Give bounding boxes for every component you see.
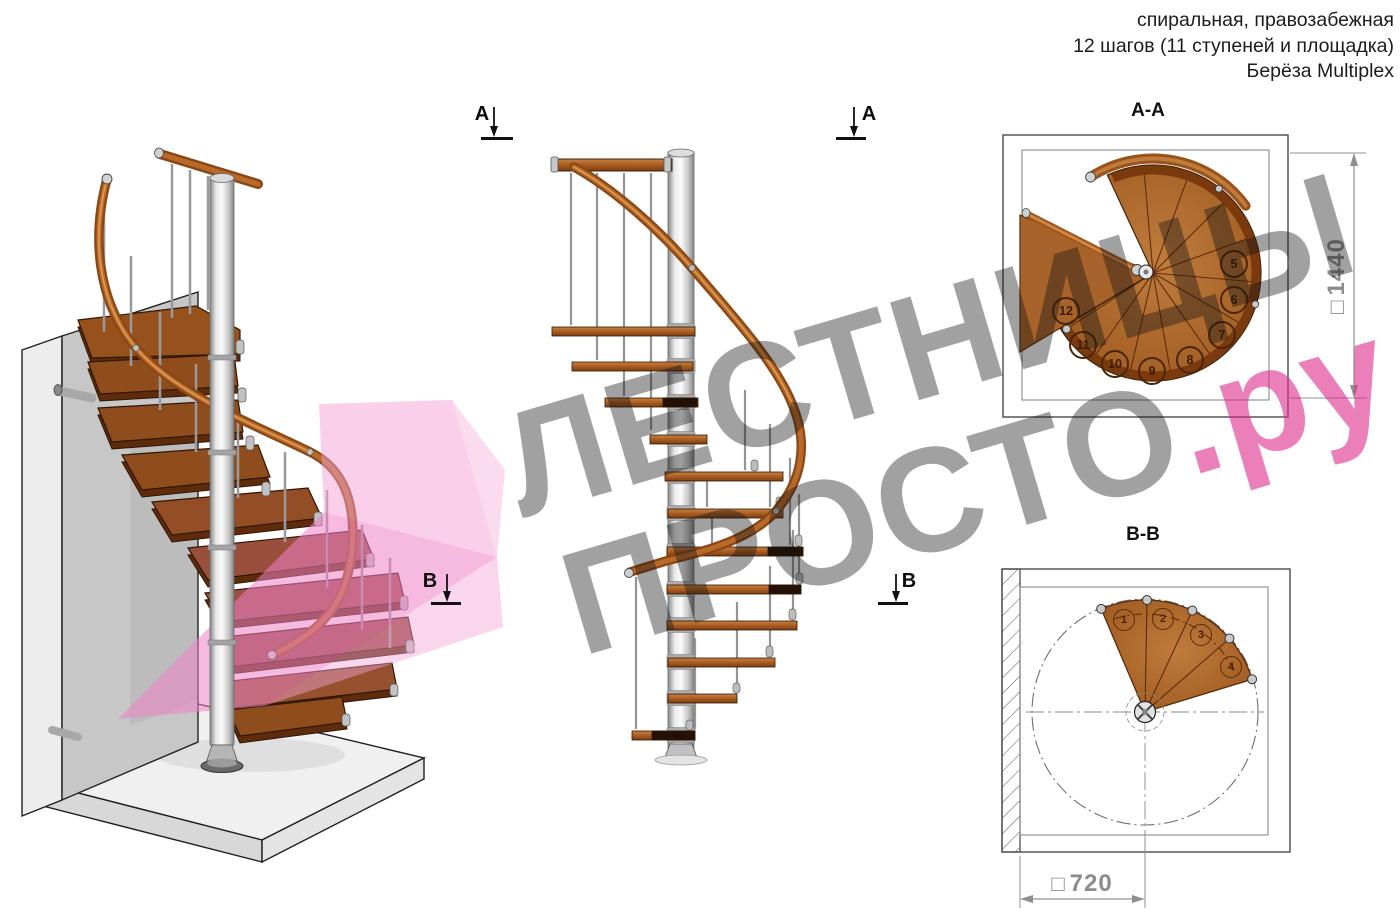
step-number-3: 3 xyxy=(1190,624,1212,646)
staircase-drawing-page: спиральная, правозабежная 12 шагов (11 с… xyxy=(0,0,1400,923)
marker-letter-b-left: В xyxy=(418,570,442,593)
left-3d-view xyxy=(22,148,505,862)
step-number-1: 1 xyxy=(1113,609,1135,631)
drawing-header: спиральная, правозабежная 12 шагов (11 с… xyxy=(1073,8,1394,85)
dimension-label-bb: □720 xyxy=(1012,870,1152,898)
elevation-view xyxy=(551,149,803,765)
header-steps-line: 12 шагов (11 ступеней и площадка) xyxy=(1073,34,1394,60)
section-title-aa: А-А xyxy=(1108,100,1188,122)
plan-bb xyxy=(1002,569,1290,908)
section-title-bb: В-В xyxy=(1103,524,1183,546)
landing-rail-3d xyxy=(155,148,259,184)
drawing-canvas xyxy=(0,0,1400,923)
dimension-value-bb: 720 xyxy=(1070,870,1113,897)
square-symbol-bb: □ xyxy=(1051,871,1065,896)
marker-letter-a-right: А xyxy=(857,103,881,126)
step-number-8: 8 xyxy=(1176,346,1204,374)
header-material-line: Берёза Multiplex xyxy=(1073,59,1394,85)
dimension-value-aa: 1440 xyxy=(1323,238,1350,295)
step-number-10: 10 xyxy=(1101,350,1129,378)
marker-letter-a-left: А xyxy=(470,103,494,126)
landing-rail-elevation xyxy=(551,157,672,172)
header-type-line: спиральная, правозабежная xyxy=(1073,8,1394,34)
step-number-2: 2 xyxy=(1152,608,1174,630)
dimension-label-aa: □1440 xyxy=(1323,216,1351,336)
marker-letter-b-right: В xyxy=(897,570,921,593)
step-number-5: 5 xyxy=(1220,250,1248,278)
step-number-7: 7 xyxy=(1208,321,1236,349)
step-number-11: 11 xyxy=(1069,331,1097,359)
step-number-9: 9 xyxy=(1138,357,1166,385)
step-number-6: 6 xyxy=(1220,286,1248,314)
plan-aa xyxy=(1003,135,1366,417)
step-number-4: 4 xyxy=(1220,656,1242,678)
step-number-12: 12 xyxy=(1052,297,1080,325)
square-symbol-aa: □ xyxy=(1324,300,1349,314)
